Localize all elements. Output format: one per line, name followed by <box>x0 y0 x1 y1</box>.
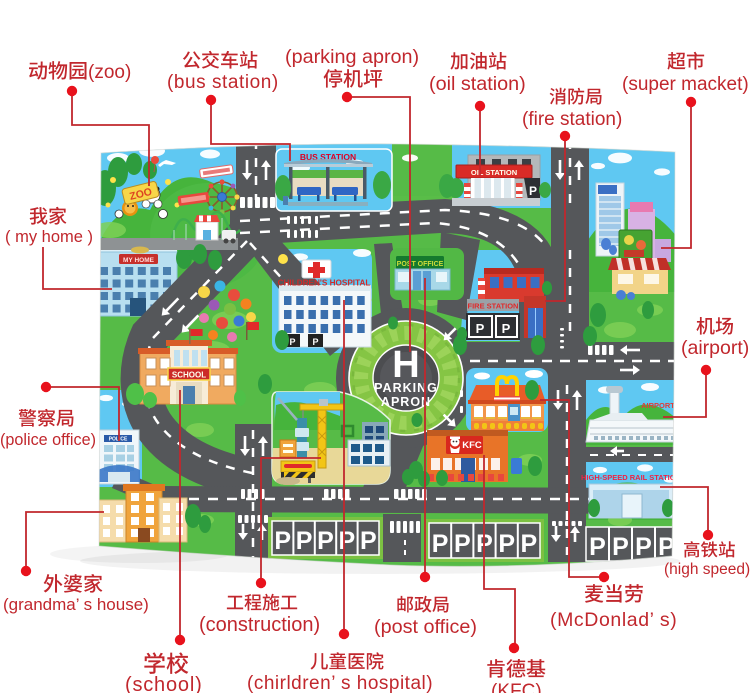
svg-text:HIGH-SPEED RAIL STATION: HIGH-SPEED RAIL STATION <box>581 473 681 482</box>
svg-text:(airport): (airport) <box>681 337 749 359</box>
svg-text:(grandma’ s house): (grandma’ s house) <box>3 595 149 614</box>
svg-text:P: P <box>339 527 356 555</box>
svg-text:(oil station): (oil station) <box>429 73 526 95</box>
svg-text:FIRE STATION: FIRE STATION <box>468 302 519 311</box>
svg-text:(post office): (post office) <box>374 616 477 638</box>
svg-text:(fire station): (fire station) <box>522 109 622 130</box>
svg-text:(police office): (police office) <box>0 431 96 449</box>
svg-text:P: P <box>529 184 537 198</box>
svg-text:P: P <box>476 321 485 336</box>
svg-text:(parking apron): (parking apron) <box>285 46 419 68</box>
svg-text:CHILDREN'S HOSPITAL: CHILDREN'S HOSPITAL <box>278 279 371 288</box>
svg-text:P: P <box>454 530 471 558</box>
svg-text:P: P <box>289 337 295 347</box>
svg-text:AIRPORT: AIRPORT <box>641 401 675 410</box>
svg-text:(chirldren’ s hospital): (chirldren’ s hospital) <box>247 673 433 693</box>
svg-text:POST OFFICE: POST OFFICE <box>397 261 444 268</box>
svg-text:(bus station): (bus station) <box>167 72 279 93</box>
svg-text:MY HOME: MY HOME <box>123 257 155 264</box>
svg-text:OIL STATION: OIL STATION <box>471 168 517 177</box>
svg-text:SCHOOL: SCHOOL <box>172 371 206 380</box>
svg-text:(zoo): (zoo) <box>88 62 131 83</box>
svg-text:P: P <box>432 530 449 558</box>
svg-text:KFC: KFC <box>462 440 482 451</box>
svg-text:P: P <box>317 527 334 555</box>
svg-text:(school): (school) <box>125 674 203 693</box>
svg-text:P: P <box>498 530 515 558</box>
svg-text:PARKING: PARKING <box>374 381 438 395</box>
svg-text:P: P <box>312 337 318 347</box>
svg-text:P: P <box>521 530 538 558</box>
svg-text:( my home ): ( my home ) <box>5 228 93 246</box>
svg-text:(super macket): (super macket) <box>622 74 749 95</box>
svg-text:(high speed): (high speed) <box>664 561 750 578</box>
svg-text:P: P <box>274 527 291 555</box>
svg-text:P: P <box>360 527 377 555</box>
svg-text:P: P <box>635 533 652 561</box>
svg-text:(construction): (construction) <box>199 614 320 636</box>
svg-text:P: P <box>589 533 606 561</box>
svg-text:APRON: APRON <box>381 395 431 409</box>
svg-text:H: H <box>392 344 419 386</box>
svg-text:P: P <box>502 321 511 336</box>
svg-text:P: P <box>296 527 313 555</box>
svg-text:(McDonlad’ s): (McDonlad’ s) <box>550 609 677 631</box>
svg-text:(KFC): (KFC) <box>491 681 542 693</box>
svg-text:P: P <box>612 533 629 561</box>
